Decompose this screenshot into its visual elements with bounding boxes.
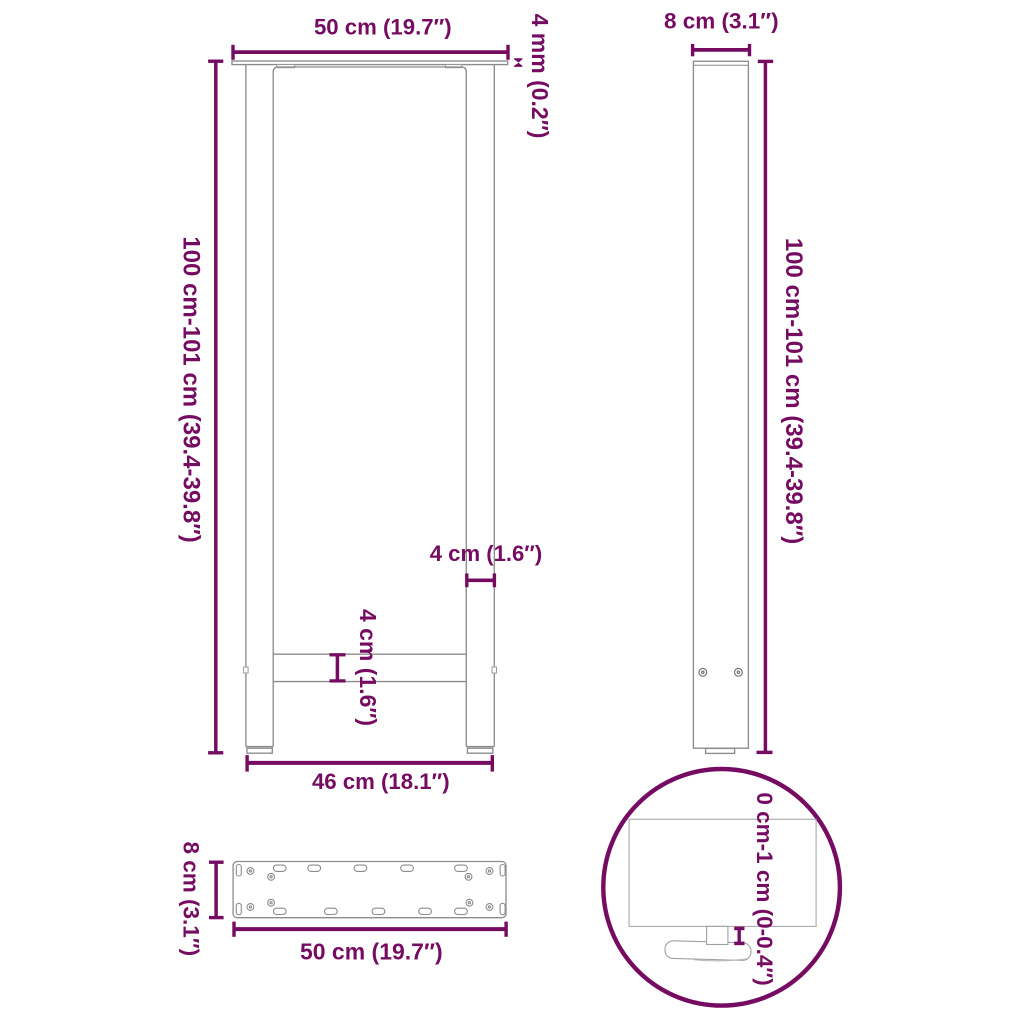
svg-text:8 cm (3.1″): 8 cm (3.1″) — [664, 8, 779, 33]
svg-text:0 cm-1 cm (0-0.4″): 0 cm-1 cm (0-0.4″) — [752, 792, 777, 985]
svg-text:8 cm (3.1″): 8 cm (3.1″) — [179, 842, 204, 957]
svg-text:4 cm (1.6″): 4 cm (1.6″) — [430, 541, 543, 566]
svg-text:50 cm (19.7″): 50 cm (19.7″) — [314, 14, 452, 39]
svg-text:4 mm (0.2″): 4 mm (0.2″) — [527, 14, 553, 139]
svg-text:4 cm (1.6″): 4 cm (1.6″) — [355, 609, 381, 726]
svg-text:50 cm (19.7″): 50 cm (19.7″) — [300, 938, 443, 964]
svg-text:100 cm-101 cm (39.4-39.8″): 100 cm-101 cm (39.4-39.8″) — [178, 236, 205, 542]
svg-text:100 cm-101 cm (39.4-39.8″): 100 cm-101 cm (39.4-39.8″) — [780, 238, 807, 544]
svg-text:46 cm (18.1″): 46 cm (18.1″) — [312, 769, 450, 794]
